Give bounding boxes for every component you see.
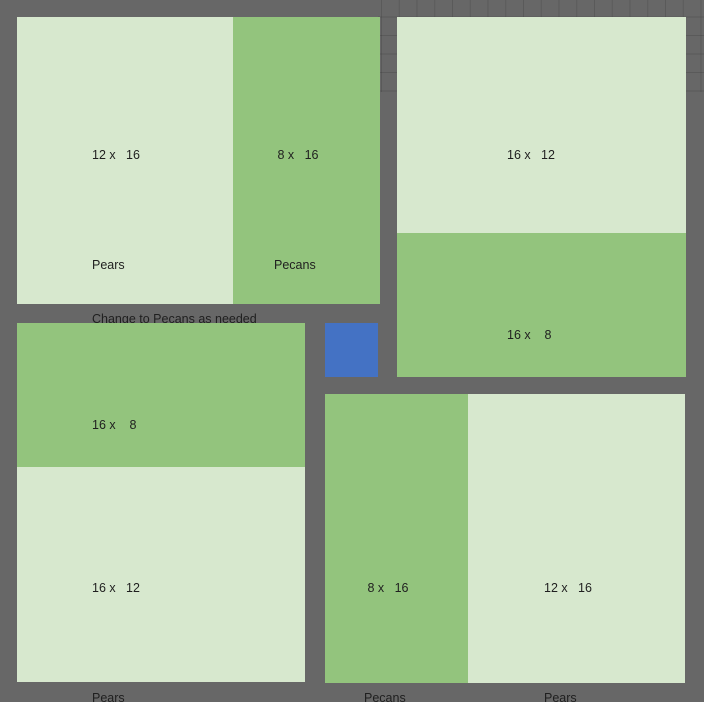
plot-top-left-pecans[interactable]: 8 x 16 Pecans xyxy=(233,17,380,304)
plot-size: 16 x 12 xyxy=(92,579,257,597)
plot-size: 12 x 16 xyxy=(92,146,257,164)
spacer-line xyxy=(92,634,257,652)
plot-label: 12 x 16 Pears Change to Pecans as needed xyxy=(544,543,704,702)
plot-crop: Pears xyxy=(544,689,704,702)
plot-bottom-left-pears[interactable]: 16 x 12 Pears Change to Pecans as needed xyxy=(17,467,305,682)
plot-size: 8 x 16 xyxy=(364,579,408,597)
plot-size: 12 x 16 xyxy=(544,579,704,597)
plot-bottom-right-pears[interactable]: 12 x 16 Pears Change to Pecans as needed xyxy=(468,394,685,683)
plot-top-right-pears[interactable]: 16 x 12 Pears Change to Pecans as needed xyxy=(397,17,686,233)
plot-bottom-right-pecans[interactable]: 8 x 16 Pecans xyxy=(325,394,468,683)
plot-size: 8 x 16 xyxy=(274,146,318,164)
planner-canvas: 12 x 16 Pears Change to Pecans as needed… xyxy=(0,0,704,702)
plot-top-right-pecans[interactable]: 16 x 8 Pecans xyxy=(397,233,686,377)
spacer-line xyxy=(507,201,672,219)
plot-crop: Pecans xyxy=(364,689,408,702)
plot-top-left-pears[interactable]: 12 x 16 Pears Change to Pecans as needed xyxy=(17,17,233,304)
plot-label: 8 x 16 Pecans xyxy=(364,543,408,702)
plot-crop: Pears xyxy=(92,256,257,274)
blue-marker-square[interactable] xyxy=(325,323,378,377)
spacer-line xyxy=(274,201,318,219)
plot-size: 16 x 12 xyxy=(507,146,672,164)
plot-label: 16 x 12 Pears Change to Pecans as needed xyxy=(92,543,257,702)
spacer-line xyxy=(364,634,408,652)
plot-size: 16 x 8 xyxy=(92,416,136,434)
plot-crop: Pears xyxy=(92,689,257,702)
spacer-line xyxy=(544,634,704,652)
plot-bottom-left-pecans[interactable]: 16 x 8 Pecans xyxy=(17,323,305,467)
plot-crop: Pecans xyxy=(274,256,318,274)
plot-size: 16 x 8 xyxy=(507,326,551,344)
plot-label: 8 x 16 Pecans xyxy=(274,110,318,310)
spacer-line xyxy=(92,201,257,219)
